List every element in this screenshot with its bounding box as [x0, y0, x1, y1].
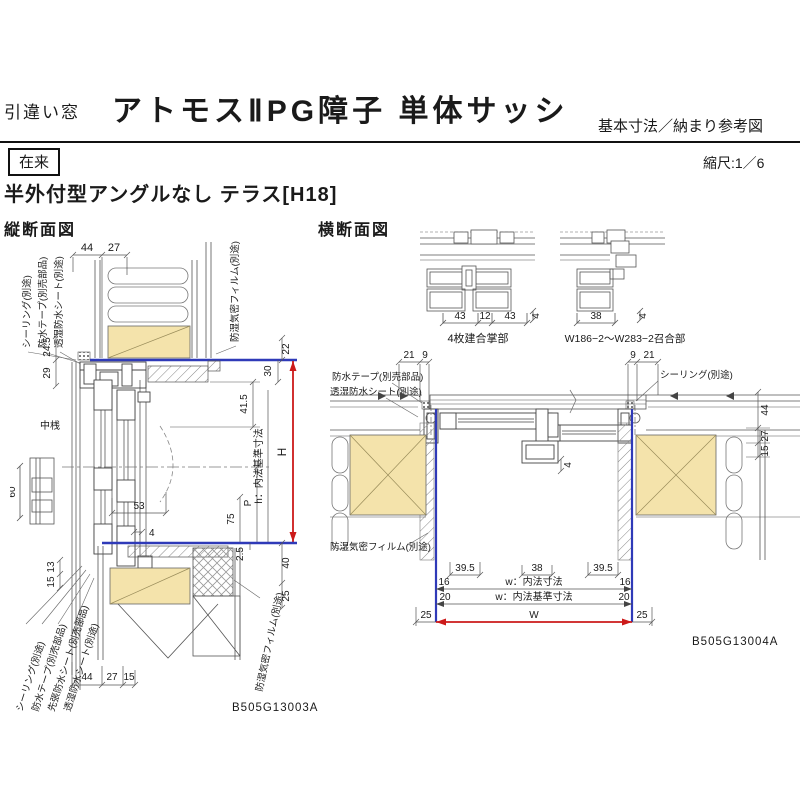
vs-drawing-code: B505G13003A: [232, 702, 318, 714]
construction-badge: 在来: [8, 148, 60, 176]
section-title: 半外付型アングルなし テラス[H18]: [4, 178, 337, 207]
vs-ann-tape-top: 防水テープ(別売部品): [37, 257, 49, 348]
vs-dim-2-5: 2.5: [235, 547, 246, 561]
hs-d1-12: 12: [479, 311, 491, 322]
vs-dim-H-red: [290, 361, 297, 542]
hs-d2-4: 4: [638, 313, 649, 319]
hs-dim-21-right: 21: [643, 350, 655, 361]
hs-d1-4: 4: [531, 313, 542, 319]
hs-dim-4: 4: [563, 462, 574, 468]
vs-dim-27-top: 27: [108, 242, 120, 254]
vs-dim-22: 22: [281, 343, 292, 355]
hs-dim-top: [396, 359, 661, 409]
page-title: アトモスⅡPG障子 単体サッシ: [112, 86, 568, 130]
hs-ann-film: 防湿気密フィルム(別途): [330, 541, 431, 553]
vs-dim-60: 60: [10, 486, 18, 498]
vs-dim-4: 4: [149, 528, 155, 539]
vs-wood-bottom: [110, 568, 190, 604]
hs-dim-38: 38: [531, 563, 543, 574]
vs-lintel-step: [208, 361, 220, 371]
vs-ann-sheet-top: 透湿防水シート(別途): [53, 256, 65, 348]
header-rule: [0, 141, 800, 143]
hs-sash: [422, 401, 634, 463]
vs-swing-arc: [160, 426, 173, 502]
hs-ann-sealing: シーリング(別途): [660, 369, 733, 381]
scale-label: 縮尺:1／6: [703, 153, 764, 173]
vs-dim-27-bottom: 27: [106, 672, 118, 683]
hs-drawing-code: B505G13004A: [692, 636, 778, 648]
hs-dim-16-right: 16: [619, 577, 631, 588]
hs-d1-43b: 43: [504, 311, 516, 322]
vs-dim-40: 40: [281, 557, 292, 569]
horizontal-section-drawing: 43 12 43 4 4枚建合掌部 38 4 W186−2〜W283−2召合部: [330, 225, 800, 680]
hs-dim-9-right: 9: [630, 350, 636, 361]
vs-dim-29: 29: [42, 367, 53, 379]
vs-leader-film-bottom: [234, 580, 260, 598]
vertical-section-drawing: 44 27 シーリング(別途) 防水テープ(別売部品) 透湿防水シート(別途) …: [10, 230, 320, 740]
vs-ann-sealing-top: シーリング(別途): [21, 275, 33, 348]
vs-dim-75: 75: [226, 513, 237, 525]
hs-dim-27: 27: [760, 430, 771, 442]
hs-dim-w-naiho: w：内法寸法: [504, 575, 562, 588]
hs-dim-39-5-left: 39.5: [455, 563, 475, 574]
vs-dim-53-label: 53: [133, 501, 145, 512]
vs-nakazan-label: 中桟: [40, 419, 60, 432]
hs-dim-w-kijun: w：内法基準寸法: [494, 590, 572, 603]
vs-dim-13: 13: [46, 561, 57, 573]
vs-dim-41-5: 41.5: [239, 394, 250, 414]
hs-d1-label: 4枚建合掌部: [447, 331, 508, 345]
hs-walls: [330, 390, 800, 413]
catalog-page: 引違い窓 アトモスⅡPG障子 単体サッシ 基本寸法／納まり参考図 在来 縮尺:1…: [0, 0, 800, 800]
vs-dim-h-label: h：内法基準寸法: [252, 428, 265, 504]
vs-dim-44-bottom: 44: [81, 672, 93, 683]
hs-dim-21-left: 21: [403, 350, 415, 361]
hs-dim-25-left: 25: [420, 610, 432, 621]
hs-dim-16-left: 16: [438, 577, 450, 588]
hs-detail1: [420, 230, 536, 326]
vs-dim-15-left: 15: [46, 576, 57, 588]
hs-d1-43a: 43: [454, 311, 466, 322]
vs-head-frame: [80, 362, 146, 388]
hs-dim-W: W: [529, 610, 539, 621]
hs-ann-sheet: 透湿防水シート(別途): [330, 386, 422, 398]
vs-dim-P: P: [243, 499, 254, 506]
vs-dim-H: H: [275, 448, 289, 457]
hs-wood-left: [350, 435, 426, 515]
hs-dim-20-right: 20: [618, 592, 630, 603]
hs-detail2: [560, 230, 665, 326]
window-type-label: 引違い窓: [4, 98, 80, 123]
hs-jamb-hatch-right: [618, 423, 632, 560]
vs-dim-30: 30: [263, 365, 274, 377]
hs-d2-38: 38: [590, 311, 602, 322]
hs-dim-9-left: 9: [422, 350, 428, 361]
vs-sill-insulation: [193, 548, 233, 596]
hs-d2-label: W186−2〜W283−2召合部: [565, 332, 686, 345]
hs-ann-tape: 防水テープ(別売部品): [332, 371, 423, 383]
vs-dim-13-15-lines: [57, 557, 63, 591]
vs-ann-film-top: 防湿気密フィルム(別途): [229, 241, 241, 342]
hs-dim-44: 44: [760, 404, 771, 416]
hs-dim-20-left: 20: [439, 592, 451, 603]
vs-lintel-hatch: [148, 366, 208, 382]
hs-dim-15: 15: [760, 445, 771, 457]
vs-dim-24-5: 24.5: [42, 337, 53, 357]
hs-wood-right: [636, 435, 716, 515]
vs-dim-44-top: 44: [81, 242, 93, 254]
vs-mullion-detail: [17, 458, 54, 524]
vs-ann-film-bottom: 防湿気密フィルム(別途): [253, 591, 286, 692]
vs-dim-15-bottom: 15: [123, 672, 135, 683]
hs-dim-39-5-right: 39.5: [593, 563, 613, 574]
hs-dim-25-right: 25: [636, 610, 648, 621]
page-subtitle: 基本寸法／納まり参考図: [598, 115, 763, 136]
